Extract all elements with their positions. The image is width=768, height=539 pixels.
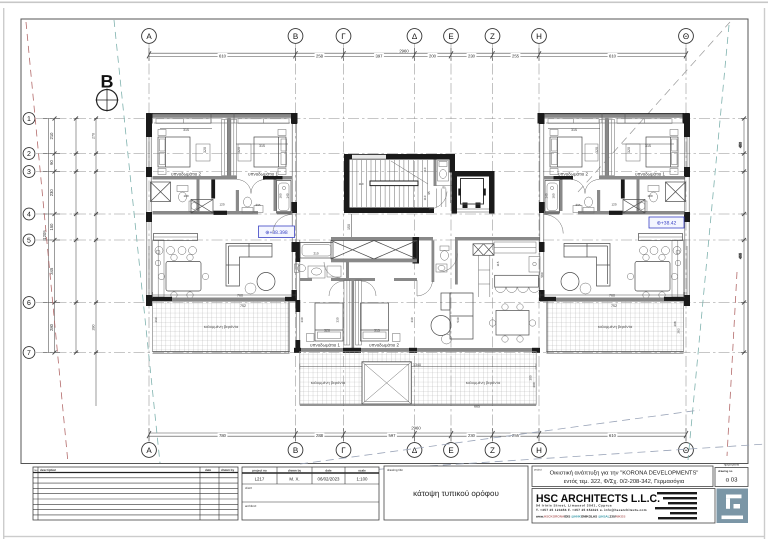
svg-text:2960: 2960 (399, 48, 409, 53)
svg-text:780: 780 (219, 433, 227, 438)
svg-text:665: 665 (474, 405, 480, 409)
svg-text:320: 320 (203, 147, 207, 153)
svg-text:180: 180 (183, 194, 188, 198)
svg-text:120: 120 (611, 203, 616, 207)
svg-text:A: A (146, 32, 152, 41)
svg-text:5: 5 (27, 237, 31, 244)
svg-text:project no: project no (252, 469, 267, 473)
svg-text:Ζ: Ζ (490, 446, 495, 455)
svg-text:Η: Η (536, 32, 542, 41)
svg-text:L217: L217 (255, 477, 265, 482)
svg-text:⊕+38.398: ⊕+38.398 (265, 230, 288, 236)
svg-text:320: 320 (324, 329, 330, 333)
svg-text:295: 295 (575, 203, 580, 207)
svg-text:drawn by: drawn by (288, 469, 302, 473)
svg-text:180: 180 (279, 193, 283, 198)
svg-text:drawing title: drawing title (387, 468, 403, 472)
svg-text:κάτοψη τυπικού ορόφου: κάτοψη τυπικού ορόφου (413, 489, 499, 498)
svg-text:Δ: Δ (412, 32, 418, 41)
svg-text:260: 260 (154, 317, 158, 322)
svg-text:330: 330 (300, 317, 304, 322)
svg-text:1:100: 1:100 (357, 477, 369, 482)
svg-text:υπνοδωμάτιο 1: υπνοδωμάτιο 1 (310, 342, 340, 347)
svg-text:client: client (245, 486, 252, 490)
svg-text:7: 7 (27, 350, 31, 357)
svg-text:2: 2 (27, 151, 31, 158)
svg-text:Γ: Γ (341, 32, 346, 41)
svg-text:date: date (325, 469, 332, 473)
svg-text:υπνοδωμάτιο 1: υπνοδωμάτιο 1 (248, 171, 278, 176)
svg-text:320: 320 (627, 147, 631, 153)
svg-text:140: 140 (286, 193, 290, 198)
svg-text:280: 280 (92, 325, 96, 331)
svg-text:320: 320 (595, 147, 599, 153)
svg-text:95: 95 (427, 191, 431, 195)
svg-text:110: 110 (359, 182, 364, 186)
svg-text:⊕+38.42: ⊕+38.42 (657, 221, 677, 227)
svg-text:6: 6 (27, 300, 31, 307)
svg-text:115: 115 (496, 261, 500, 266)
svg-text:date: date (205, 468, 212, 472)
svg-text:110: 110 (423, 195, 427, 200)
svg-text:150: 150 (49, 223, 54, 231)
svg-text:Θ: Θ (683, 446, 689, 455)
svg-text:Οικιστική ανάπτυξη για την "KO: Οικιστική ανάπτυξη για την "KORONA DEVEL… (550, 470, 699, 477)
svg-text:330: 330 (336, 317, 340, 322)
svg-text:06/02/2023: 06/02/2023 (318, 477, 341, 482)
svg-text:Δ: Δ (412, 446, 418, 455)
svg-text:450: 450 (739, 142, 743, 148)
svg-text:Η: Η (536, 446, 542, 455)
svg-text:255: 255 (512, 53, 520, 58)
svg-text:760: 760 (237, 293, 243, 297)
svg-text:www.HSCKORONAIDIS @HNKONIKOL: www.HSCKORONAIDIS @HNKONIKOLAS @HSAL230/… (535, 515, 625, 519)
svg-text:M. X.: M. X. (289, 477, 299, 482)
svg-text:υπνοδωμάτιο 2: υπνοδωμάτιο 2 (558, 171, 588, 176)
svg-text:4: 4 (27, 211, 31, 218)
svg-text:T. +357 25 123456 F. +357 25: T. +357 25 123456 F. +357 25 654321 e. i… (536, 508, 647, 512)
svg-text:300: 300 (529, 375, 533, 380)
svg-text:330: 330 (410, 317, 414, 322)
svg-text:180: 180 (552, 193, 556, 198)
svg-text:315: 315 (183, 128, 189, 132)
svg-text:760: 760 (609, 293, 615, 297)
svg-text:298: 298 (673, 321, 677, 326)
svg-text:597: 597 (389, 433, 397, 438)
svg-text:230: 230 (468, 53, 476, 58)
svg-text:255: 255 (512, 433, 520, 438)
svg-text:Γ: Γ (341, 446, 346, 455)
svg-text:752: 752 (611, 304, 617, 308)
svg-text:drawn by: drawn by (221, 468, 235, 472)
svg-text:α 03: α 03 (726, 477, 738, 484)
svg-text:120: 120 (219, 203, 224, 207)
svg-text:description: description (40, 468, 56, 472)
svg-text:397: 397 (376, 53, 384, 58)
svg-text:530: 530 (456, 317, 460, 322)
svg-text:230: 230 (49, 189, 54, 197)
svg-text:architect: architect (245, 504, 257, 508)
svg-text:υπνοδωμάτιο 1: υπνοδωμάτιο 1 (635, 171, 665, 176)
svg-text:230: 230 (468, 433, 476, 438)
svg-text:Θ: Θ (683, 32, 689, 41)
svg-text:94 Irinis Street, Limassol 304: 94 Irinis Street, Limassol 3041, Cyprus (536, 504, 612, 508)
svg-text:Ζ: Ζ (490, 32, 495, 41)
svg-text:290: 290 (532, 382, 536, 387)
svg-text:εντός τεμ. 322, Φ/Σχ. 0/2-208-: εντός τεμ. 322, Φ/Σχ. 0/2-208-342, Γερμα… (564, 478, 685, 485)
svg-text:καλυμμένη βεράντα: καλυμμένη βεράντα (311, 380, 346, 385)
svg-text:B: B (293, 446, 298, 455)
svg-text:610: 610 (609, 433, 617, 438)
svg-text:283: 283 (677, 328, 681, 333)
svg-text:project: project (534, 469, 542, 472)
svg-text:295: 295 (255, 203, 260, 207)
svg-text:3: 3 (27, 169, 31, 176)
svg-text:υπνοδωμάτιο 2: υπνοδωμάτιο 2 (171, 171, 201, 176)
svg-text:ημερομηνία: ημερομηνία (724, 463, 740, 467)
svg-text:200: 200 (429, 53, 437, 58)
svg-text:280: 280 (49, 323, 54, 331)
svg-text:610: 610 (219, 53, 227, 58)
svg-text:A: A (146, 446, 152, 455)
svg-text:580: 580 (540, 272, 544, 277)
svg-text:scale: scale (358, 469, 366, 473)
svg-text:315: 315 (259, 144, 265, 148)
svg-text:455: 455 (739, 253, 743, 259)
svg-text:καλυμμένη βεράντα: καλυμμένη βεράντα (598, 324, 633, 329)
svg-text:καλυμμένη βεράντα: καλυμμένη βεράντα (466, 380, 501, 385)
svg-text:B: B (293, 32, 298, 41)
svg-text:90: 90 (49, 160, 54, 165)
svg-text:288: 288 (316, 433, 324, 438)
svg-text:210: 210 (49, 132, 54, 140)
svg-text:1: 1 (27, 116, 31, 123)
svg-text:110: 110 (423, 167, 427, 172)
svg-text:drawing no: drawing no (718, 470, 733, 473)
svg-text:υπνοδωμάτιο 2: υπνοδωμάτιο 2 (369, 342, 399, 347)
svg-text:85: 85 (442, 186, 446, 190)
svg-text:2960: 2960 (411, 426, 421, 431)
svg-text:258: 258 (316, 53, 324, 58)
svg-text:καλυμμένη βεράντα: καλυμμένη βεράντα (204, 324, 239, 329)
svg-text:210: 210 (313, 252, 318, 256)
svg-text:610: 610 (609, 53, 617, 58)
svg-text:315: 315 (374, 329, 380, 333)
svg-text:752: 752 (240, 304, 246, 308)
svg-text:150: 150 (347, 224, 351, 230)
svg-text:315: 315 (571, 128, 577, 132)
svg-text:180: 180 (647, 194, 652, 198)
svg-text:Ε: Ε (448, 446, 453, 455)
svg-text:140: 140 (545, 193, 549, 198)
svg-text:320: 320 (237, 147, 241, 153)
svg-text:315: 315 (645, 144, 651, 148)
svg-text:270: 270 (92, 133, 96, 139)
svg-text:Ε: Ε (448, 32, 453, 41)
